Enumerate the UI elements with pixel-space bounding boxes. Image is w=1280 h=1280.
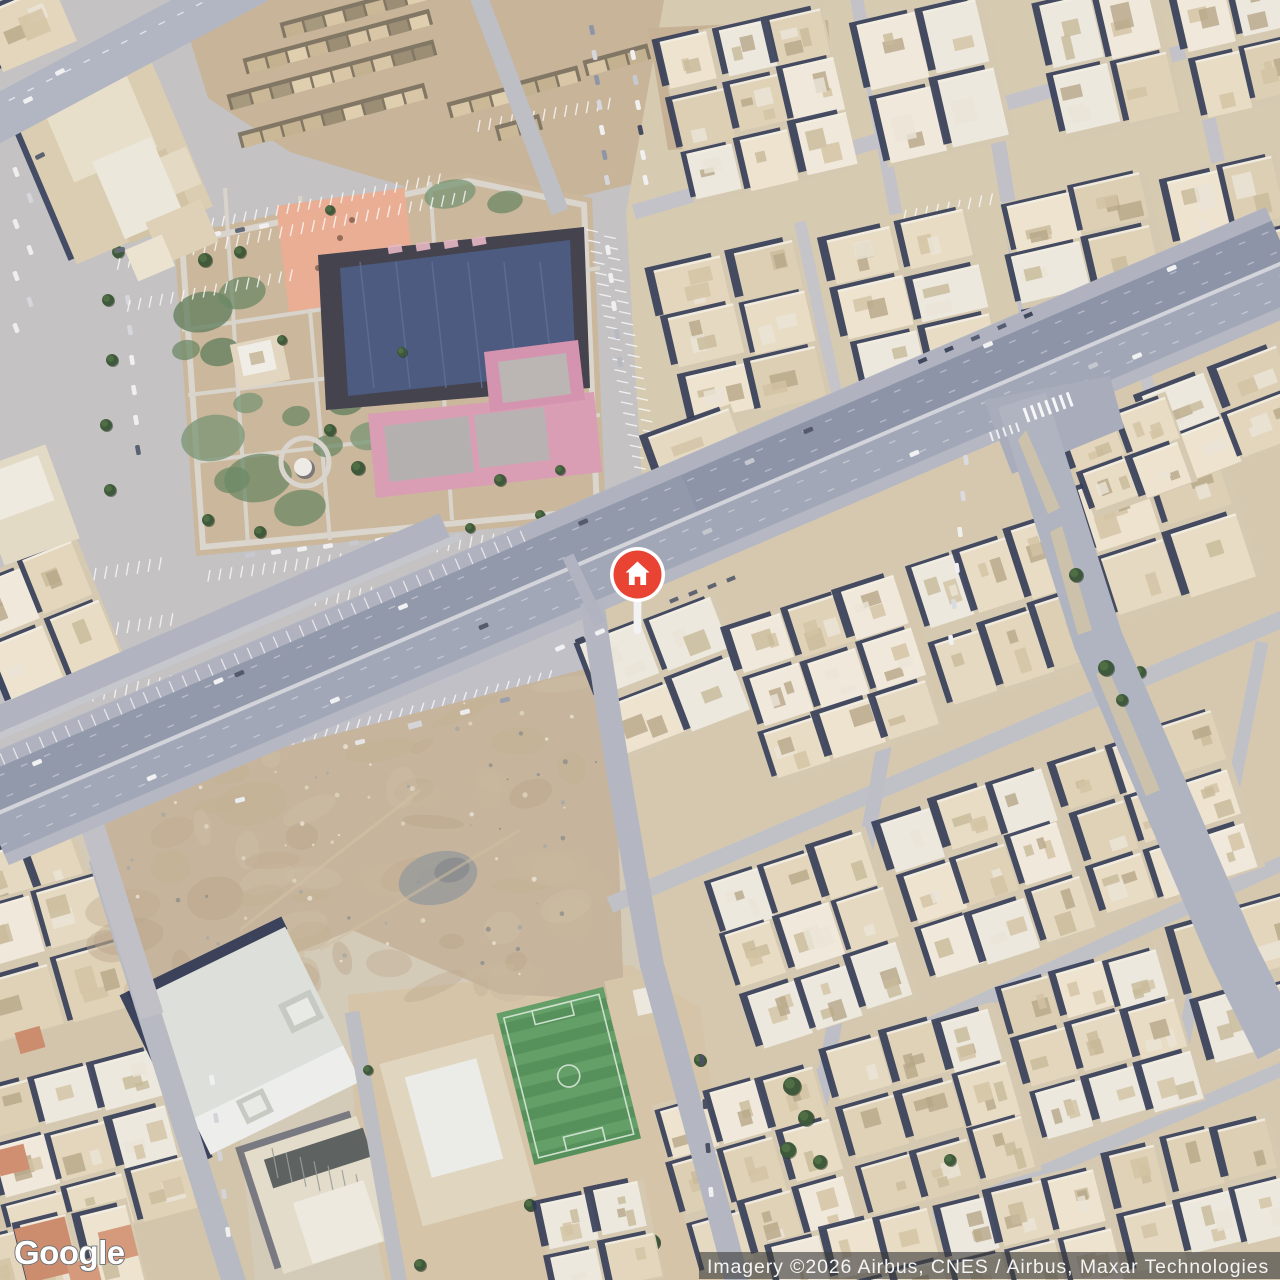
svg-text:Imagery ©2026 Airbus, CNES / A: Imagery ©2026 Airbus, CNES / Airbus, Max… xyxy=(707,1256,1269,1278)
svg-text:Google: Google xyxy=(14,1234,125,1271)
